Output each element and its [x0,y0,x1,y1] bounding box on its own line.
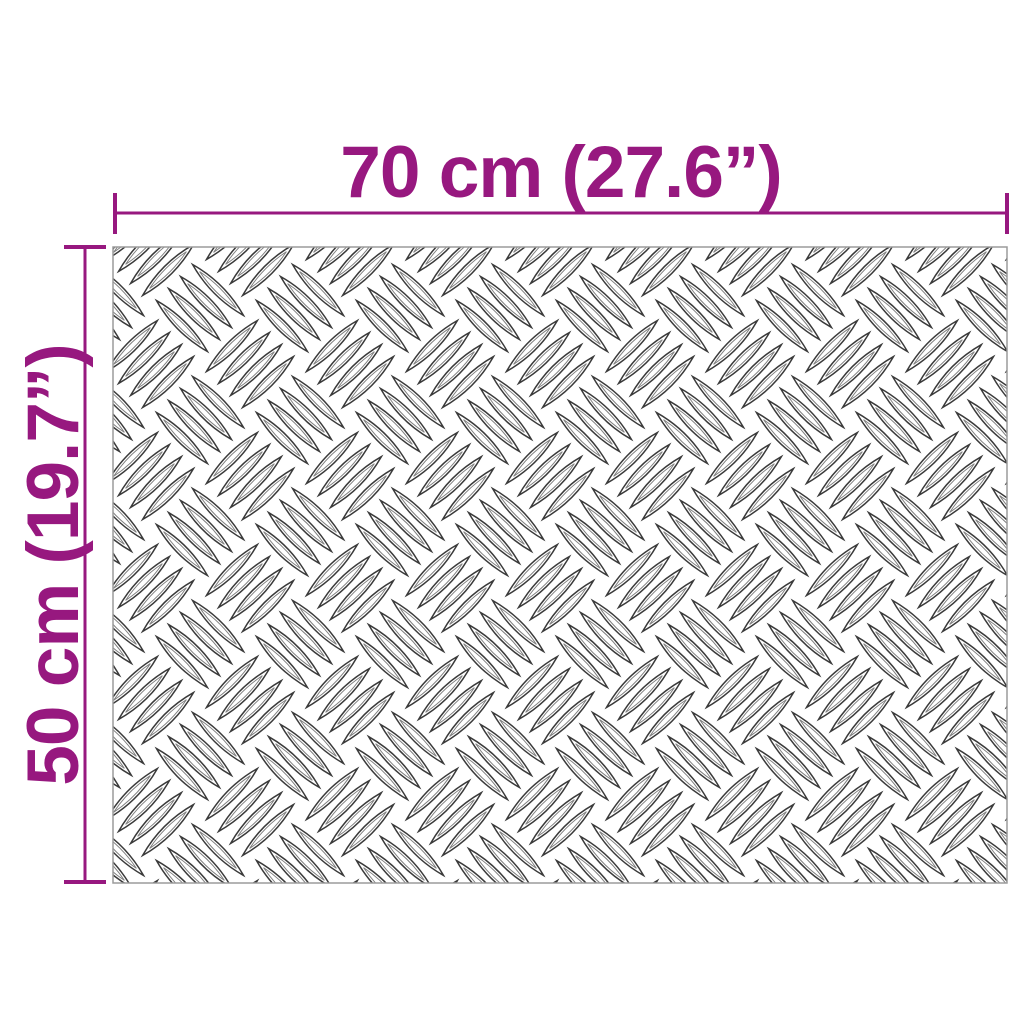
width-dimension-label: 70 cm (27.6”) [340,132,781,213]
checker-plate-image [113,247,1007,883]
height-dimension-label: 50 cm (19.7”) [13,344,94,785]
product-dimension-diagram: 70 cm (27.6”) 50 cm (19.7”) [0,0,1024,1024]
